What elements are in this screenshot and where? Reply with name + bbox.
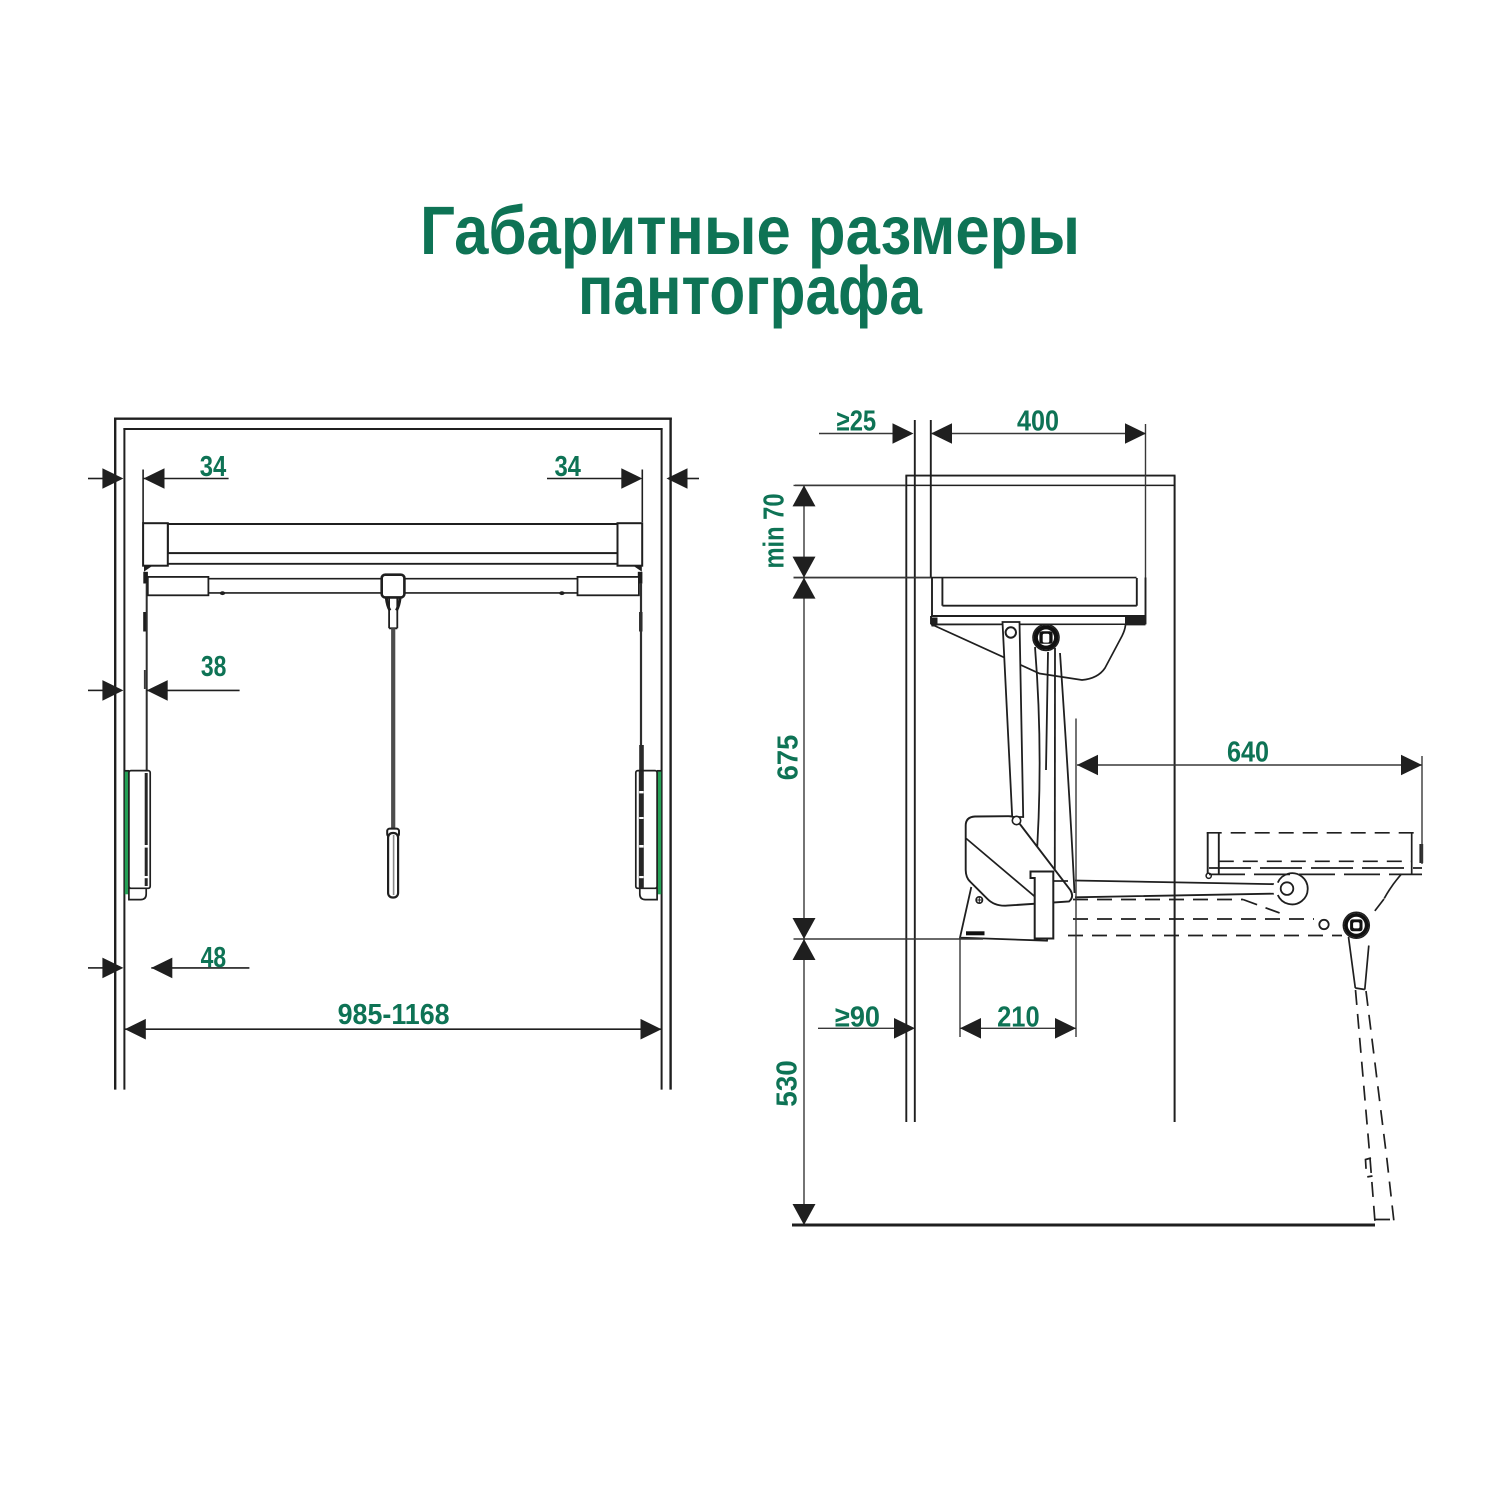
svg-text:675: 675 <box>773 735 805 781</box>
svg-text:38: 38 <box>201 651 227 683</box>
svg-text:210: 210 <box>997 1002 1040 1034</box>
svg-text:985-1168: 985-1168 <box>338 999 450 1031</box>
svg-text:min 70: min 70 <box>759 494 791 569</box>
svg-text:34: 34 <box>200 451 227 483</box>
svg-text:≥25: ≥25 <box>837 406 877 438</box>
svg-text:530: 530 <box>772 1060 804 1107</box>
svg-text:пантографа: пантографа <box>578 252 923 329</box>
svg-text:640: 640 <box>1227 737 1269 769</box>
svg-text:48: 48 <box>201 942 227 974</box>
svg-text:≥90: ≥90 <box>835 1002 880 1034</box>
svg-text:34: 34 <box>554 451 581 483</box>
svg-text:400: 400 <box>1017 406 1059 438</box>
